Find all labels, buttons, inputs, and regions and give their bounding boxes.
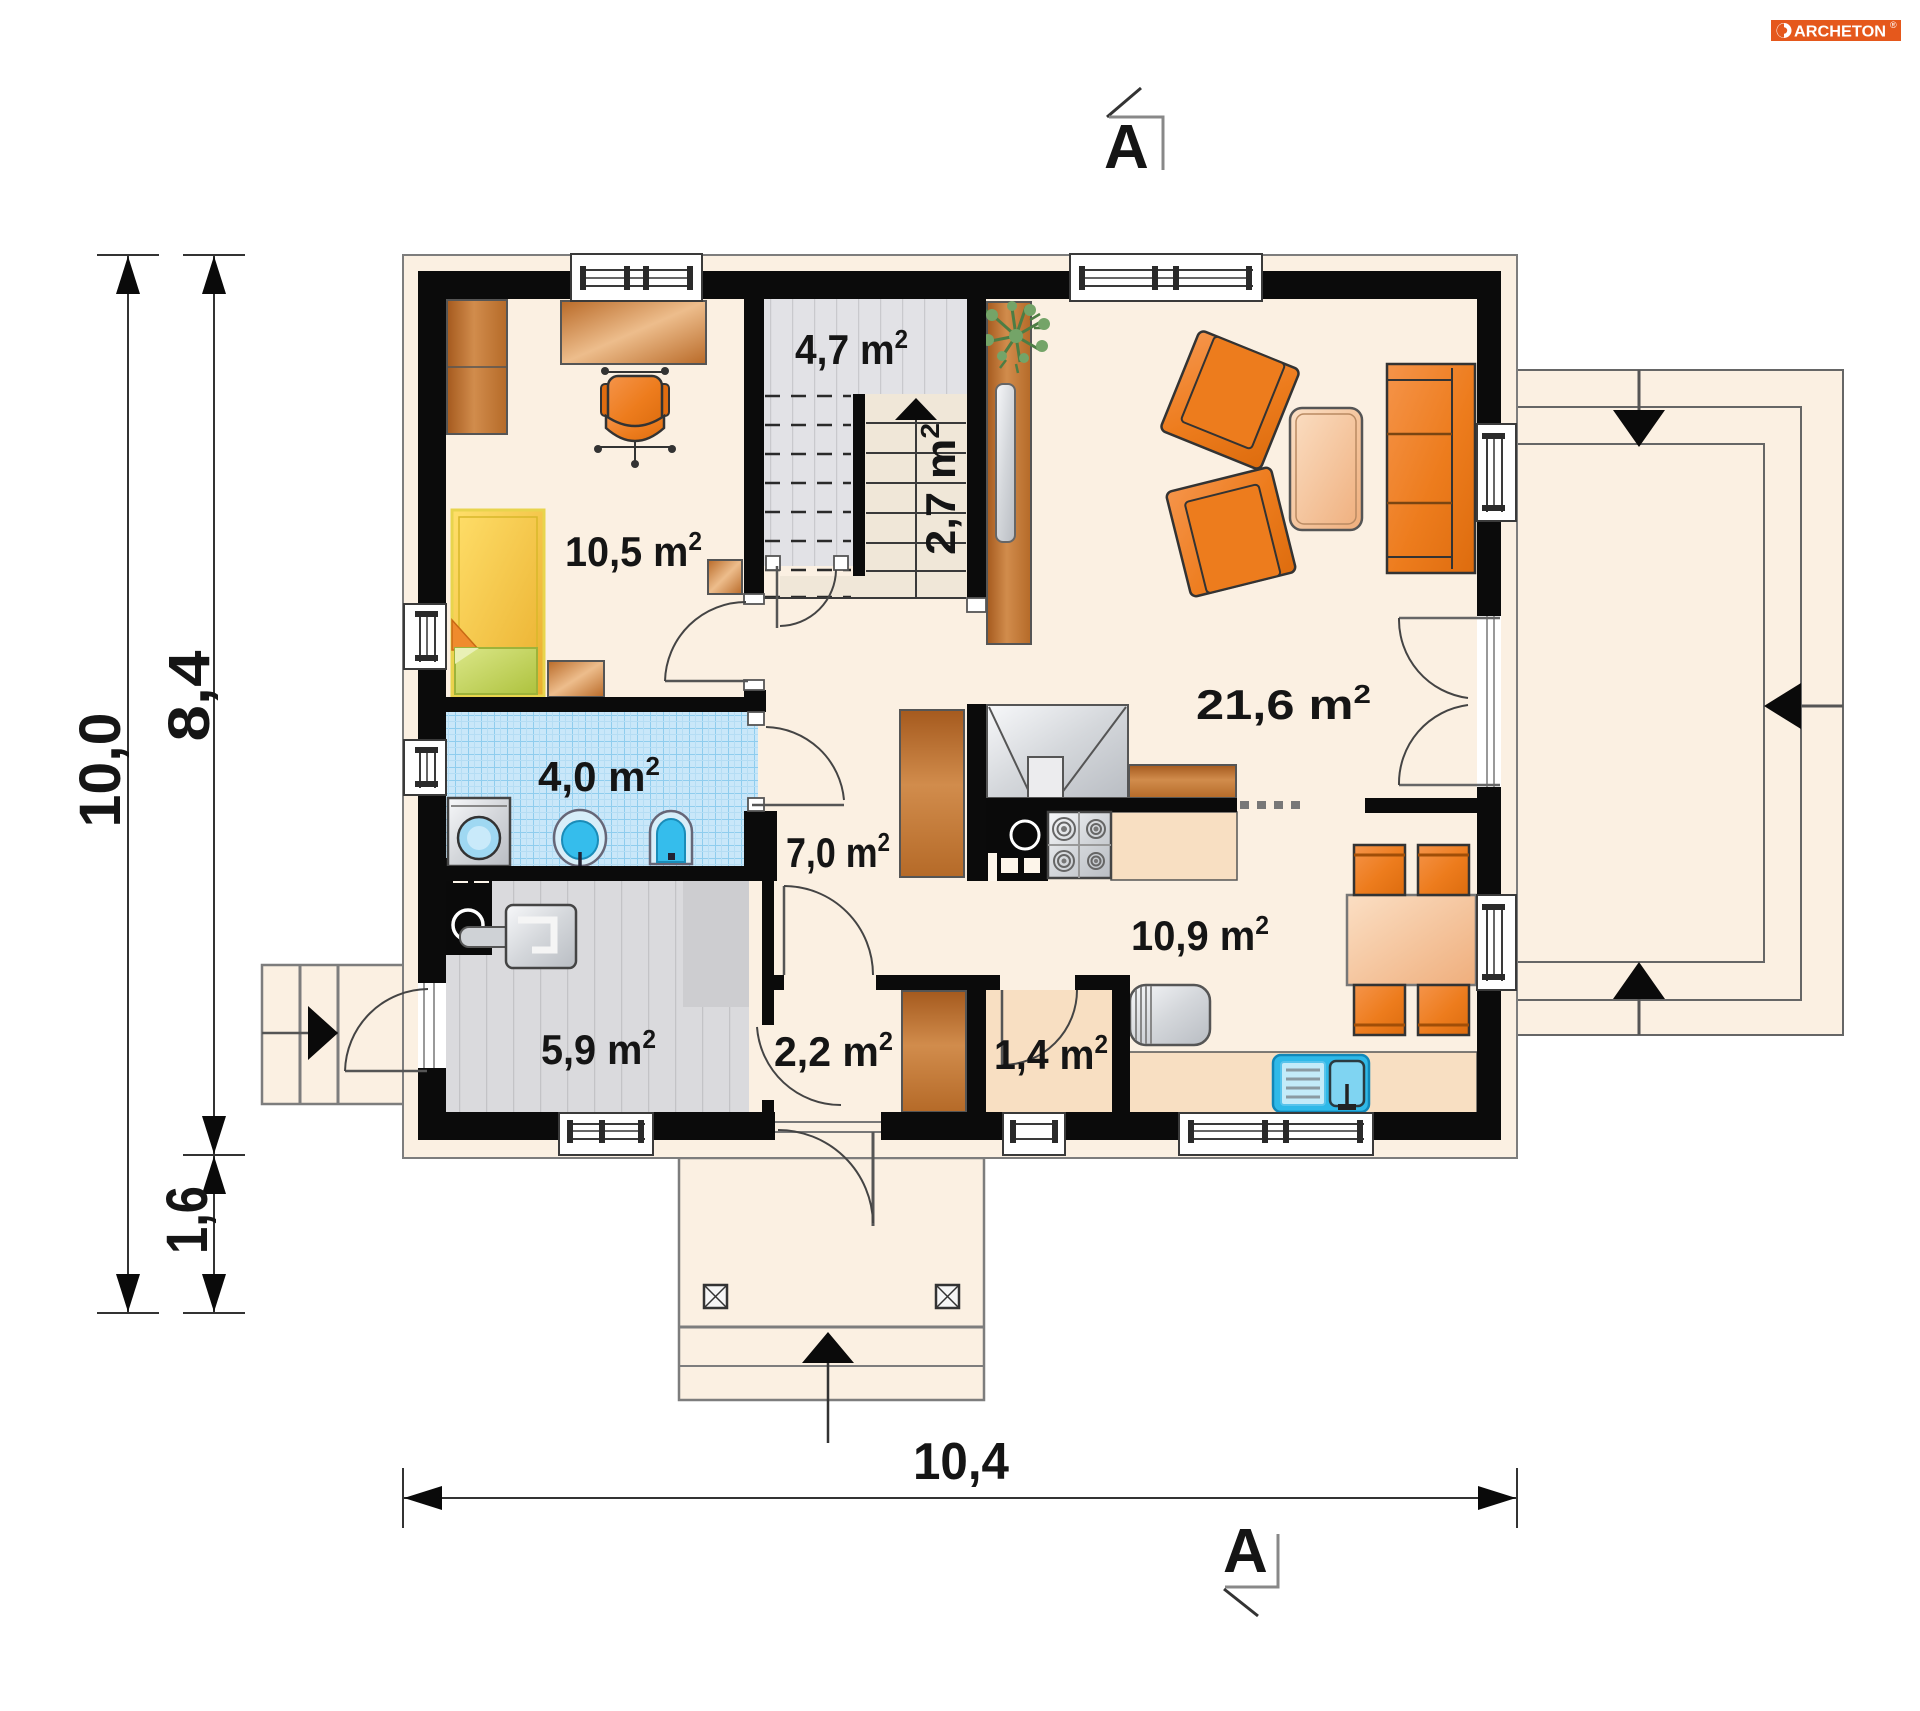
svg-text:4,0 m2: 4,0 m2 xyxy=(538,751,660,800)
svg-text:A: A xyxy=(1104,113,1149,182)
svg-text:®: ® xyxy=(1890,20,1897,30)
svg-text:10,0: 10,0 xyxy=(68,713,133,828)
svg-text:21,6 m2: 21,6 m2 xyxy=(1196,679,1371,728)
svg-text:5,9 m2: 5,9 m2 xyxy=(541,1024,656,1073)
svg-text:2,2 m2: 2,2 m2 xyxy=(774,1026,893,1075)
svg-text:8,4: 8,4 xyxy=(157,651,222,742)
svg-text:A: A xyxy=(1223,1517,1268,1586)
svg-text:7,0 m2: 7,0 m2 xyxy=(786,827,890,876)
svg-text:1,4 m2: 1,4 m2 xyxy=(994,1029,1108,1078)
svg-text:4,7 m2: 4,7 m2 xyxy=(795,324,908,373)
svg-text:10,9 m2: 10,9 m2 xyxy=(1131,910,1269,959)
svg-text:ARCHETON: ARCHETON xyxy=(1794,24,1886,41)
svg-text:10,4: 10,4 xyxy=(913,1433,1009,1491)
svg-text:10,5 m2: 10,5 m2 xyxy=(565,526,702,575)
svg-text:2,7 m2: 2,7 m2 xyxy=(915,423,964,555)
svg-text:1,6: 1,6 xyxy=(155,1186,220,1254)
